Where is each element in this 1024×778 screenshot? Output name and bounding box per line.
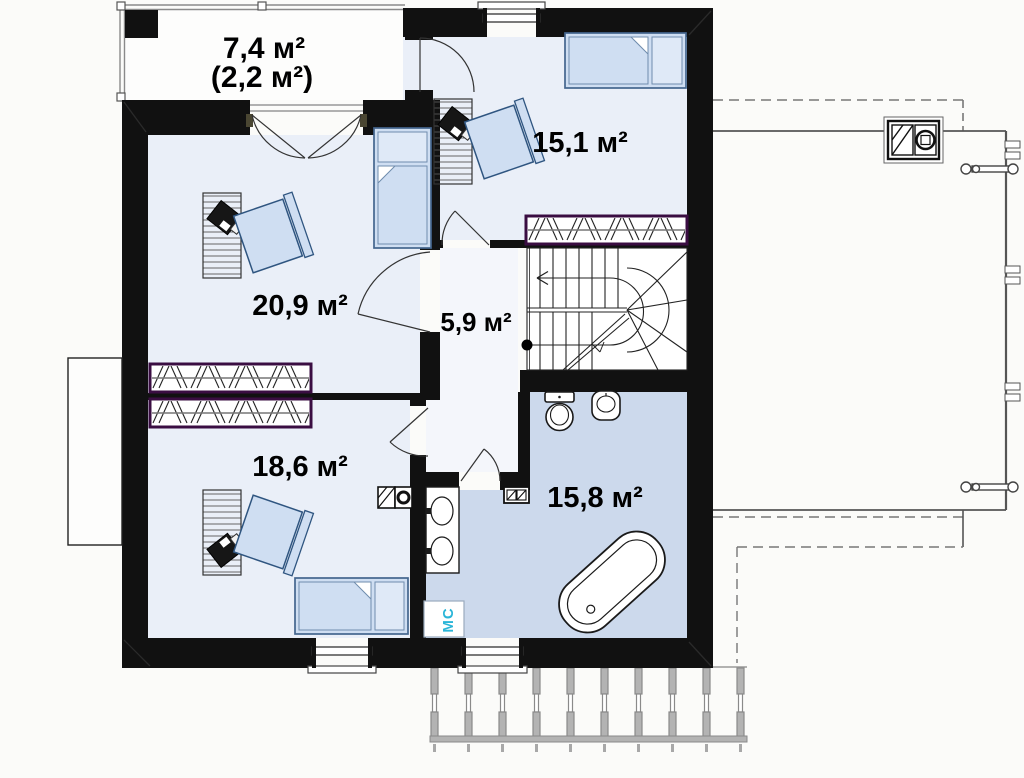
- label-bedroom-1-area: 15,1 м²: [532, 127, 628, 159]
- bathroom-vent-icon: [504, 487, 529, 503]
- vent-flue-block: [378, 487, 412, 508]
- label-bathroom-area: 15,8 м²: [547, 482, 643, 514]
- wardrobe-bedroom-2: [150, 364, 311, 392]
- floor-plan-drawing: МС 7,4 м² (2,2 м²) 15,1 м² 20,9 м² 5,9 м…: [0, 0, 1024, 778]
- staircase: [522, 248, 688, 370]
- exterior-chimney-breast: [68, 358, 122, 545]
- chimney-icon: [884, 117, 943, 163]
- wardrobe-bedroom-1: [526, 216, 687, 244]
- vanity-double-sink: [426, 487, 459, 573]
- label-bedroom-2-area: 20,9 м²: [252, 290, 348, 322]
- label-hallway-area: 5,9 м²: [440, 307, 512, 337]
- sink-icon: [592, 391, 620, 420]
- bed-bedroom-2: [374, 128, 431, 248]
- toilet-icon: [545, 392, 574, 431]
- bed-bedroom-3: [295, 578, 408, 634]
- roof-skylight-bars: [961, 164, 1018, 492]
- roof-outline: [713, 100, 1006, 663]
- window-bottom-right: [458, 638, 527, 673]
- label-bedroom-3-area: 18,6 м²: [252, 451, 348, 483]
- wardrobe-bedroom-3: [150, 399, 311, 427]
- floor-plan-canvas: МС 7,4 м² (2,2 м²) 15,1 м² 20,9 м² 5,9 м…: [0, 0, 1024, 778]
- window-bottom-left: [308, 638, 376, 673]
- washing-machine: МС: [424, 601, 464, 637]
- washing-machine-label: МС: [440, 607, 457, 632]
- roof-gutter-ticks: [1005, 141, 1020, 401]
- pergola-posts: [430, 667, 747, 752]
- stair-newel-dot: [522, 340, 533, 351]
- bed-bedroom-1: [565, 33, 686, 88]
- balcony-pillar: [125, 10, 158, 38]
- label-terrace-area-note: (2,2 м²): [211, 61, 313, 94]
- window-top: [478, 2, 545, 37]
